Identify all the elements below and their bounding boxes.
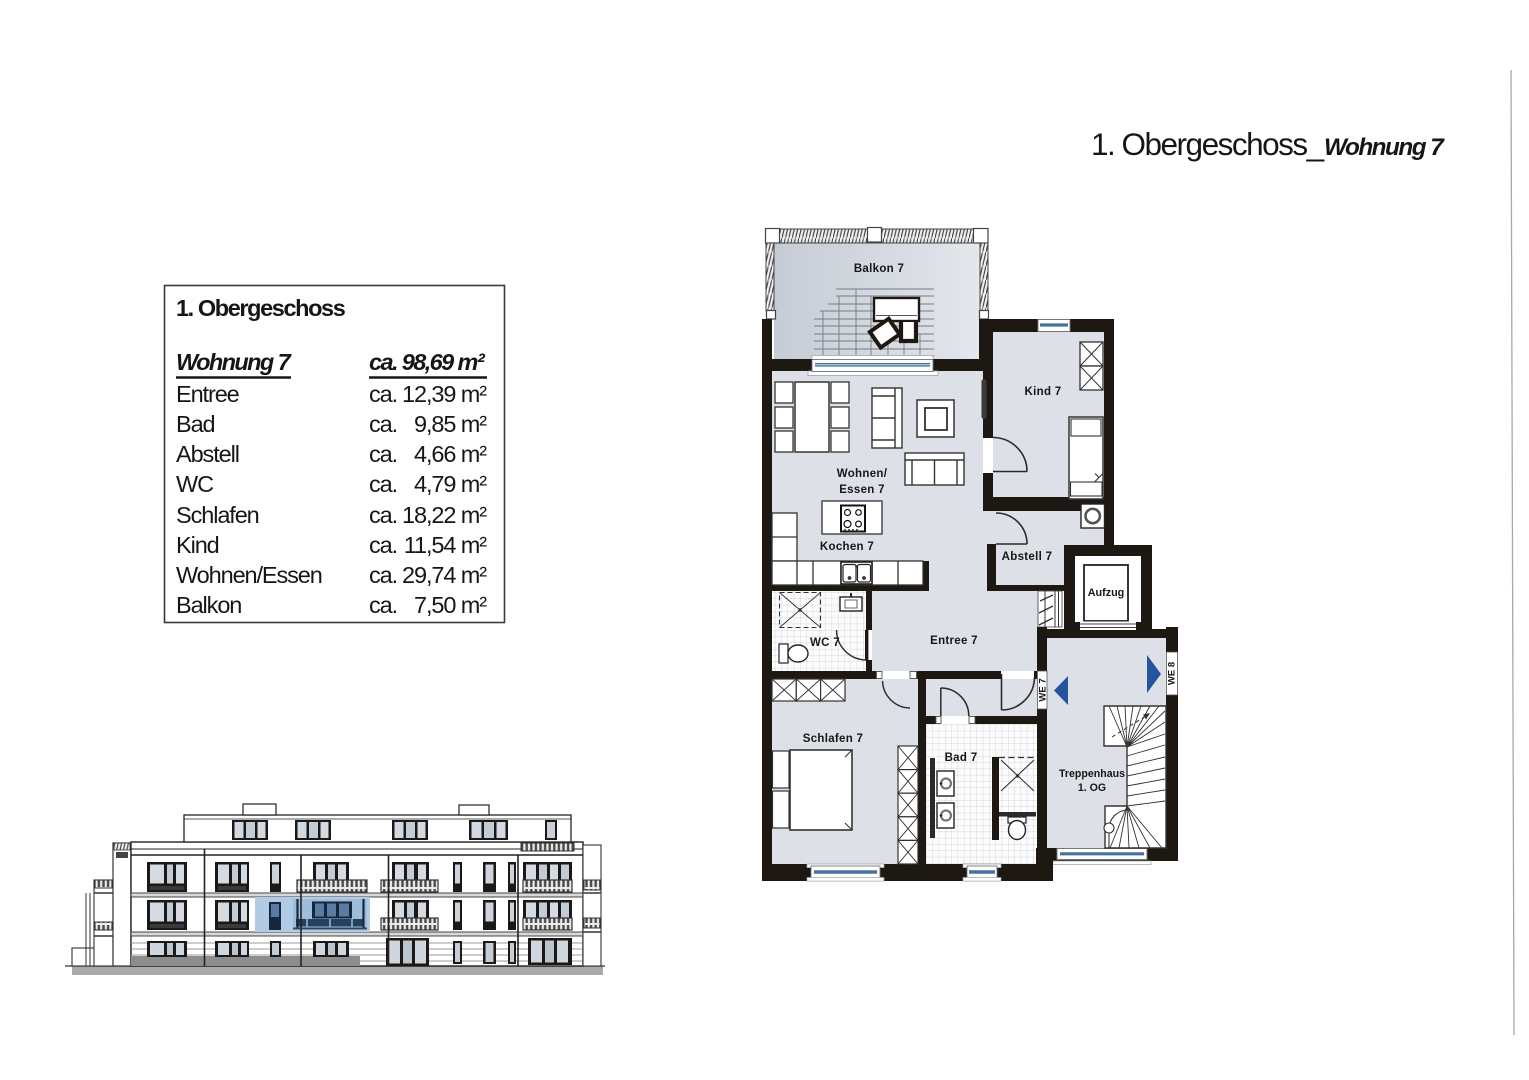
- svg-text:Wohnung 7: Wohnung 7: [176, 349, 292, 375]
- svg-text:WC 7: WC 7: [810, 637, 840, 649]
- svg-text:Balkon 7: Balkon 7: [854, 263, 904, 275]
- svg-text:ca.: ca.: [369, 471, 397, 497]
- svg-text:Treppenhaus: Treppenhaus: [1059, 768, 1125, 780]
- svg-text:Wohnung 7: Wohnung 7: [1324, 134, 1445, 161]
- svg-text:Essen 7: Essen 7: [839, 484, 885, 496]
- svg-text:Wohnen/: Wohnen/: [837, 468, 888, 480]
- svg-text:ca. 98,69 m²: ca. 98,69 m²: [369, 349, 486, 375]
- svg-text:18,22 m²: 18,22 m²: [402, 502, 487, 528]
- svg-text:Schlafen: Schlafen: [176, 502, 259, 528]
- svg-text:29,74 m²: 29,74 m²: [402, 562, 487, 588]
- svg-text:ca.: ca.: [369, 441, 397, 467]
- svg-text:1. OG: 1. OG: [1078, 782, 1106, 794]
- svg-text:ca.: ca.: [369, 562, 397, 588]
- svg-text:Abstell: Abstell: [176, 441, 239, 467]
- svg-text:ca.: ca.: [369, 502, 397, 528]
- svg-text:Aufzug: Aufzug: [1088, 587, 1125, 599]
- svg-text:Wohnen/Essen: Wohnen/Essen: [176, 562, 322, 588]
- svg-text:Kind: Kind: [176, 532, 219, 558]
- svg-text:ca.: ca.: [369, 381, 397, 407]
- svg-text:7,50 m²: 7,50 m²: [414, 592, 487, 618]
- svg-text:Kind 7: Kind 7: [1025, 386, 1062, 398]
- svg-text:WC: WC: [176, 471, 214, 497]
- svg-text:Kochen 7: Kochen 7: [820, 541, 874, 553]
- svg-text:ca.: ca.: [369, 592, 397, 618]
- svg-text:Schlafen 7: Schlafen 7: [803, 733, 864, 745]
- svg-text:1. Obergeschoss_: 1. Obergeschoss_: [1091, 126, 1325, 162]
- svg-text:9,85 m²: 9,85 m²: [414, 411, 487, 437]
- svg-text:Bad 7: Bad 7: [945, 752, 978, 764]
- svg-text:4,79 m²: 4,79 m²: [414, 471, 487, 497]
- svg-text:Balkon: Balkon: [176, 592, 241, 618]
- svg-text:11,54 m²: 11,54 m²: [404, 532, 487, 558]
- svg-text:4,66 m²: 4,66 m²: [414, 441, 487, 467]
- svg-text:Abstell 7: Abstell 7: [1002, 551, 1053, 563]
- svg-text:WE 8: WE 8: [1167, 662, 1178, 685]
- svg-text:Bad: Bad: [176, 411, 215, 437]
- svg-text:12,39 m²: 12,39 m²: [402, 381, 487, 407]
- svg-text:WE 7: WE 7: [1037, 678, 1048, 701]
- svg-text:ca.: ca.: [369, 411, 397, 437]
- svg-text:Entree: Entree: [176, 381, 240, 407]
- svg-text:Entree 7: Entree 7: [930, 635, 978, 647]
- svg-text:1. Obergeschoss: 1. Obergeschoss: [176, 295, 346, 321]
- svg-text:ca.: ca.: [369, 532, 397, 558]
